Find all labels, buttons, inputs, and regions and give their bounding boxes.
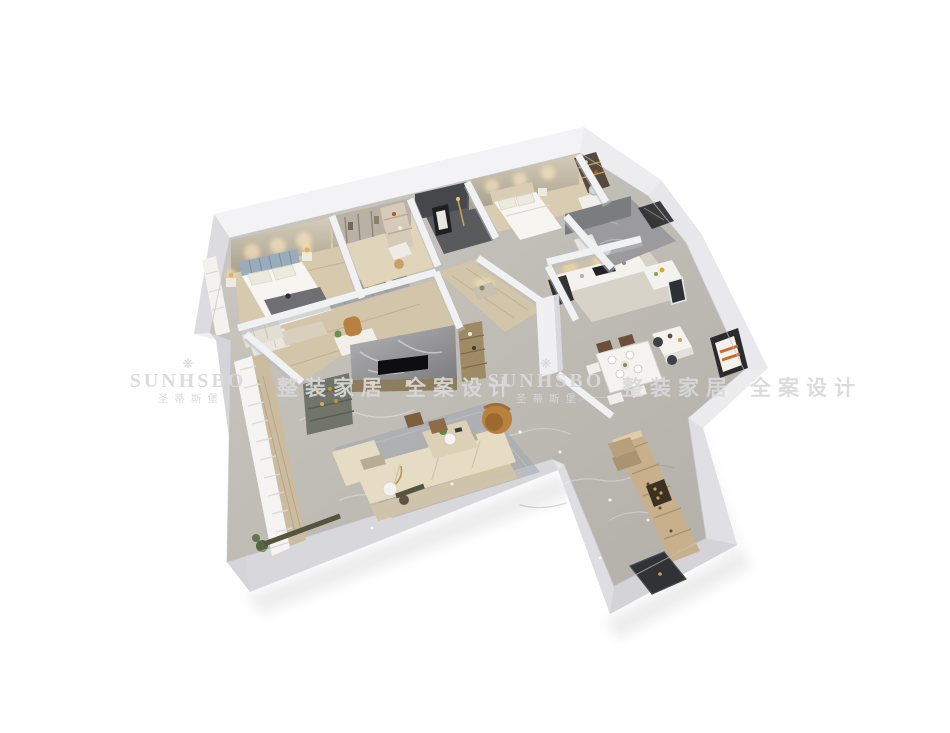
kitchen-window: [668, 278, 686, 304]
bar-stool: [667, 355, 677, 365]
apartment-3d-model: [0, 0, 950, 733]
table-lamp: [229, 273, 234, 278]
nightstand: [226, 278, 236, 287]
desk-plant: [335, 331, 342, 338]
table-lamp: [305, 248, 310, 253]
armchair: [482, 404, 512, 434]
media-console: [352, 378, 457, 392]
floorplan-render: ❋ SUNHSBO 圣蒂斯堡 整装家居全案设计 ❋ SUNHSBO 圣蒂斯堡 整…: [0, 0, 950, 733]
vanity-stool: [394, 259, 404, 269]
bar-stool: [653, 337, 663, 347]
nightstand: [538, 188, 547, 196]
